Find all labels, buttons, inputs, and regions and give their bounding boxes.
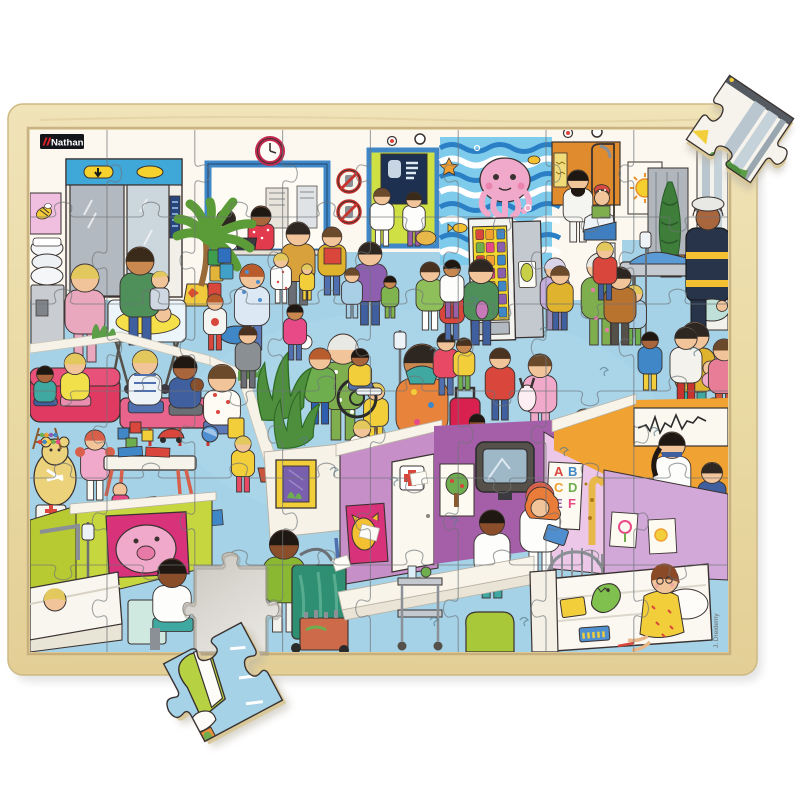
svg-text:B: B <box>568 464 577 479</box>
svg-text:C: C <box>554 480 564 495</box>
svg-text:Nathan: Nathan <box>51 137 84 148</box>
svg-text:F: F <box>568 496 576 511</box>
svg-text:A: A <box>554 464 564 479</box>
svg-text:J. Dreidemy: J. Dreidemy <box>713 613 720 648</box>
svg-text:D: D <box>568 480 577 495</box>
